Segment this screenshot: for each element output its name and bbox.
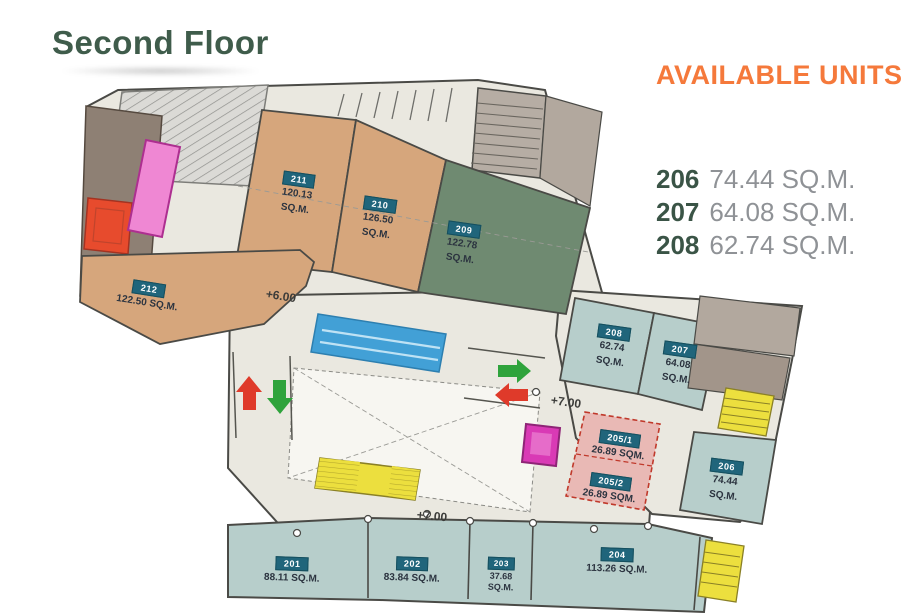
unit-label-204: 204 113.26 SQ.M.: [586, 547, 648, 578]
unit-label-210: 210 126.50 SQ.M.: [359, 195, 397, 242]
unit-area-line: 74.44: [712, 474, 738, 489]
unit-label-211: 211 120.13 SQ.M.: [278, 170, 316, 217]
unit-area-line: SQ.M.: [488, 583, 514, 593]
unit-area-line: 62.74: [599, 340, 626, 356]
unit-label-201: 201 88.11 SQ.M.: [264, 556, 321, 586]
unit-badge: 203: [488, 557, 516, 571]
available-units-panel: AVAILABLE UNITS 20674.44 SQ.M. 20764.08 …: [656, 60, 906, 262]
page-title: Second Floor: [52, 24, 269, 62]
title-shadow: [58, 66, 263, 76]
unit-label-202: 202 83.84 SQ.M.: [383, 556, 440, 586]
unit-number: 208: [656, 230, 699, 260]
unit-size: 62.74 SQ.M.: [709, 230, 855, 260]
unit-badge: 202: [396, 556, 429, 571]
unit-number: 206: [656, 164, 699, 194]
unit-label-207: 207 64.08 SQ.M.: [659, 340, 697, 387]
available-unit-row: 20862.74 SQ.M.: [656, 229, 906, 262]
unit-label-209: 209 122.78 SQ.M.: [443, 220, 481, 267]
floor-plan-page: Second Floor AVAILABLE UNITS 20674.44 SQ…: [0, 0, 914, 615]
unit-size: 64.08 SQ.M.: [709, 197, 855, 227]
escalator-center-right-run: [388, 466, 420, 500]
unit-label-206: 206 74.44 SQ.M.: [706, 458, 744, 505]
available-unit-row: 20764.08 SQ.M.: [656, 196, 906, 229]
unit-badge: 201: [276, 556, 309, 571]
escalator-center-left-run: [315, 458, 360, 492]
elevator-cab: [530, 432, 552, 456]
unit-area-line: 37.68: [490, 572, 513, 582]
unit-area-line: 83.84 SQ.M.: [383, 572, 440, 586]
unit-label-208: 208 62.74 SQ.M.: [593, 323, 631, 370]
unit-label-203: 203 37.68 SQ.M.: [487, 557, 515, 594]
unit-area-line: 113.26 SQ.M.: [586, 563, 648, 578]
staircase-bottom-right: [698, 540, 744, 602]
available-units-heading: AVAILABLE UNITS: [656, 60, 906, 91]
unit-number: 207: [656, 197, 699, 227]
unit-badge: 204: [601, 547, 634, 562]
unit-area-line: 88.11 SQ.M.: [264, 572, 320, 586]
unit-badge: 206: [710, 458, 744, 476]
red-room: [84, 198, 132, 254]
unit-area-line: 64.08: [665, 357, 692, 373]
unit-size: 74.44 SQ.M.: [709, 164, 855, 194]
level-label: +7.00: [416, 508, 447, 525]
available-units-list: 20674.44 SQ.M. 20764.08 SQ.M. 20862.74 S…: [656, 163, 906, 262]
available-unit-row: 20674.44 SQ.M.: [656, 163, 906, 196]
